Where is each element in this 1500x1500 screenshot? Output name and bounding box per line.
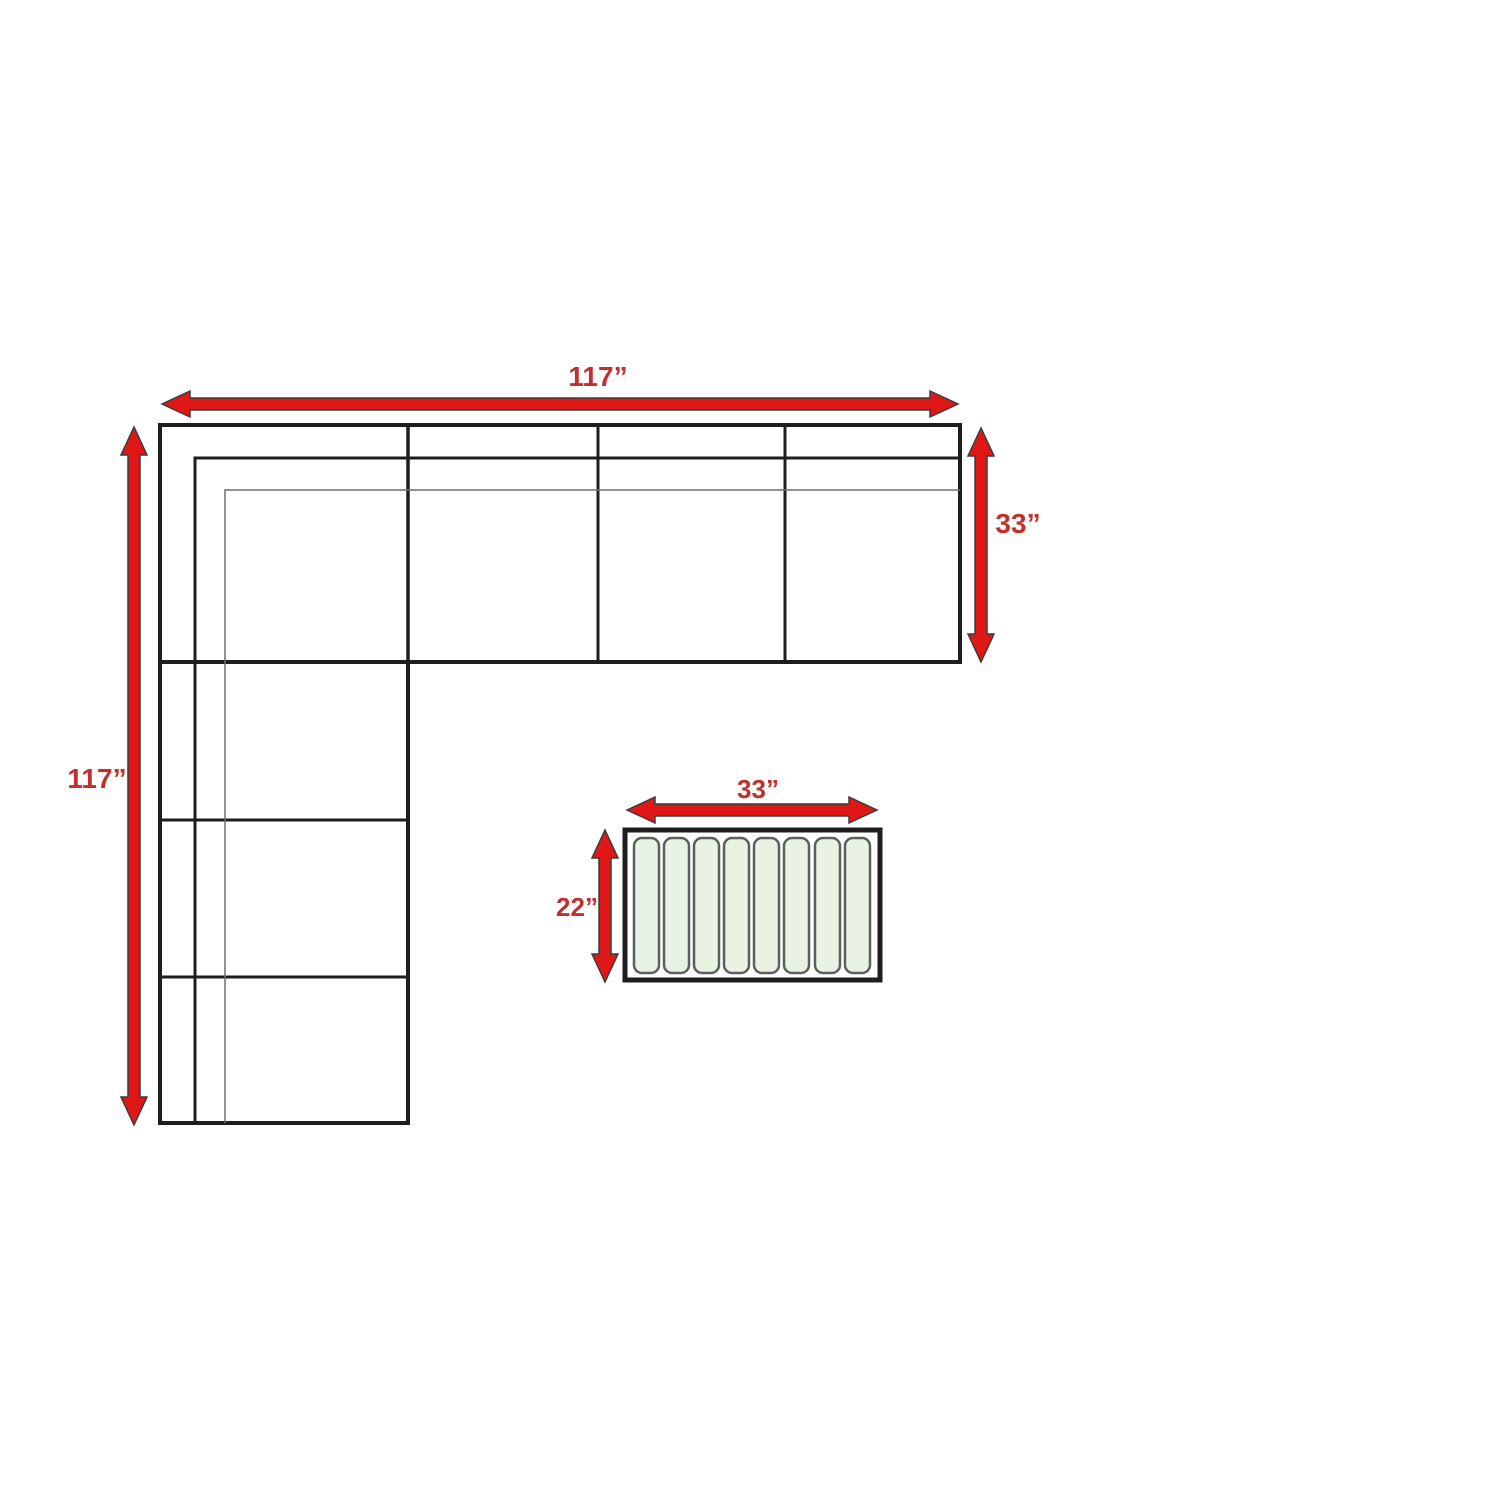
double-arrow-horizontal-icon — [162, 391, 958, 417]
diagram-page: 117” 117” 33” — [0, 0, 1500, 1500]
sofa-backrest-line — [195, 458, 960, 1123]
diagram-canvas: 117” 117” 33” — [0, 0, 1500, 1500]
table-slat — [754, 838, 779, 973]
dimension-sofa-width: 117” — [162, 361, 958, 417]
sofa-outer-boundary — [160, 425, 960, 1123]
table-slat — [815, 838, 840, 973]
sofa-outline — [160, 425, 960, 1123]
table-slat — [845, 838, 870, 973]
table-slat — [694, 838, 719, 973]
dimension-label-table-depth: 22” — [556, 892, 598, 922]
dimension-table-width: 33” — [627, 774, 877, 823]
table-slat — [784, 838, 809, 973]
dimension-sofa-section-depth: 33” — [968, 428, 1041, 662]
table-slat — [634, 838, 659, 973]
table-slat — [664, 838, 689, 973]
dimension-table-depth: 22” — [556, 830, 618, 982]
dimension-sofa-depth: 117” — [67, 427, 147, 1125]
table-slat — [724, 838, 749, 973]
dimension-label-sofa-section-depth: 33” — [995, 508, 1040, 539]
dimension-label-sofa-depth: 117” — [67, 763, 126, 794]
dimension-label-table-width: 33” — [737, 774, 779, 804]
double-arrow-vertical-icon — [968, 428, 994, 662]
dimension-label-sofa-width: 117” — [568, 361, 627, 392]
table-outline — [625, 830, 880, 980]
